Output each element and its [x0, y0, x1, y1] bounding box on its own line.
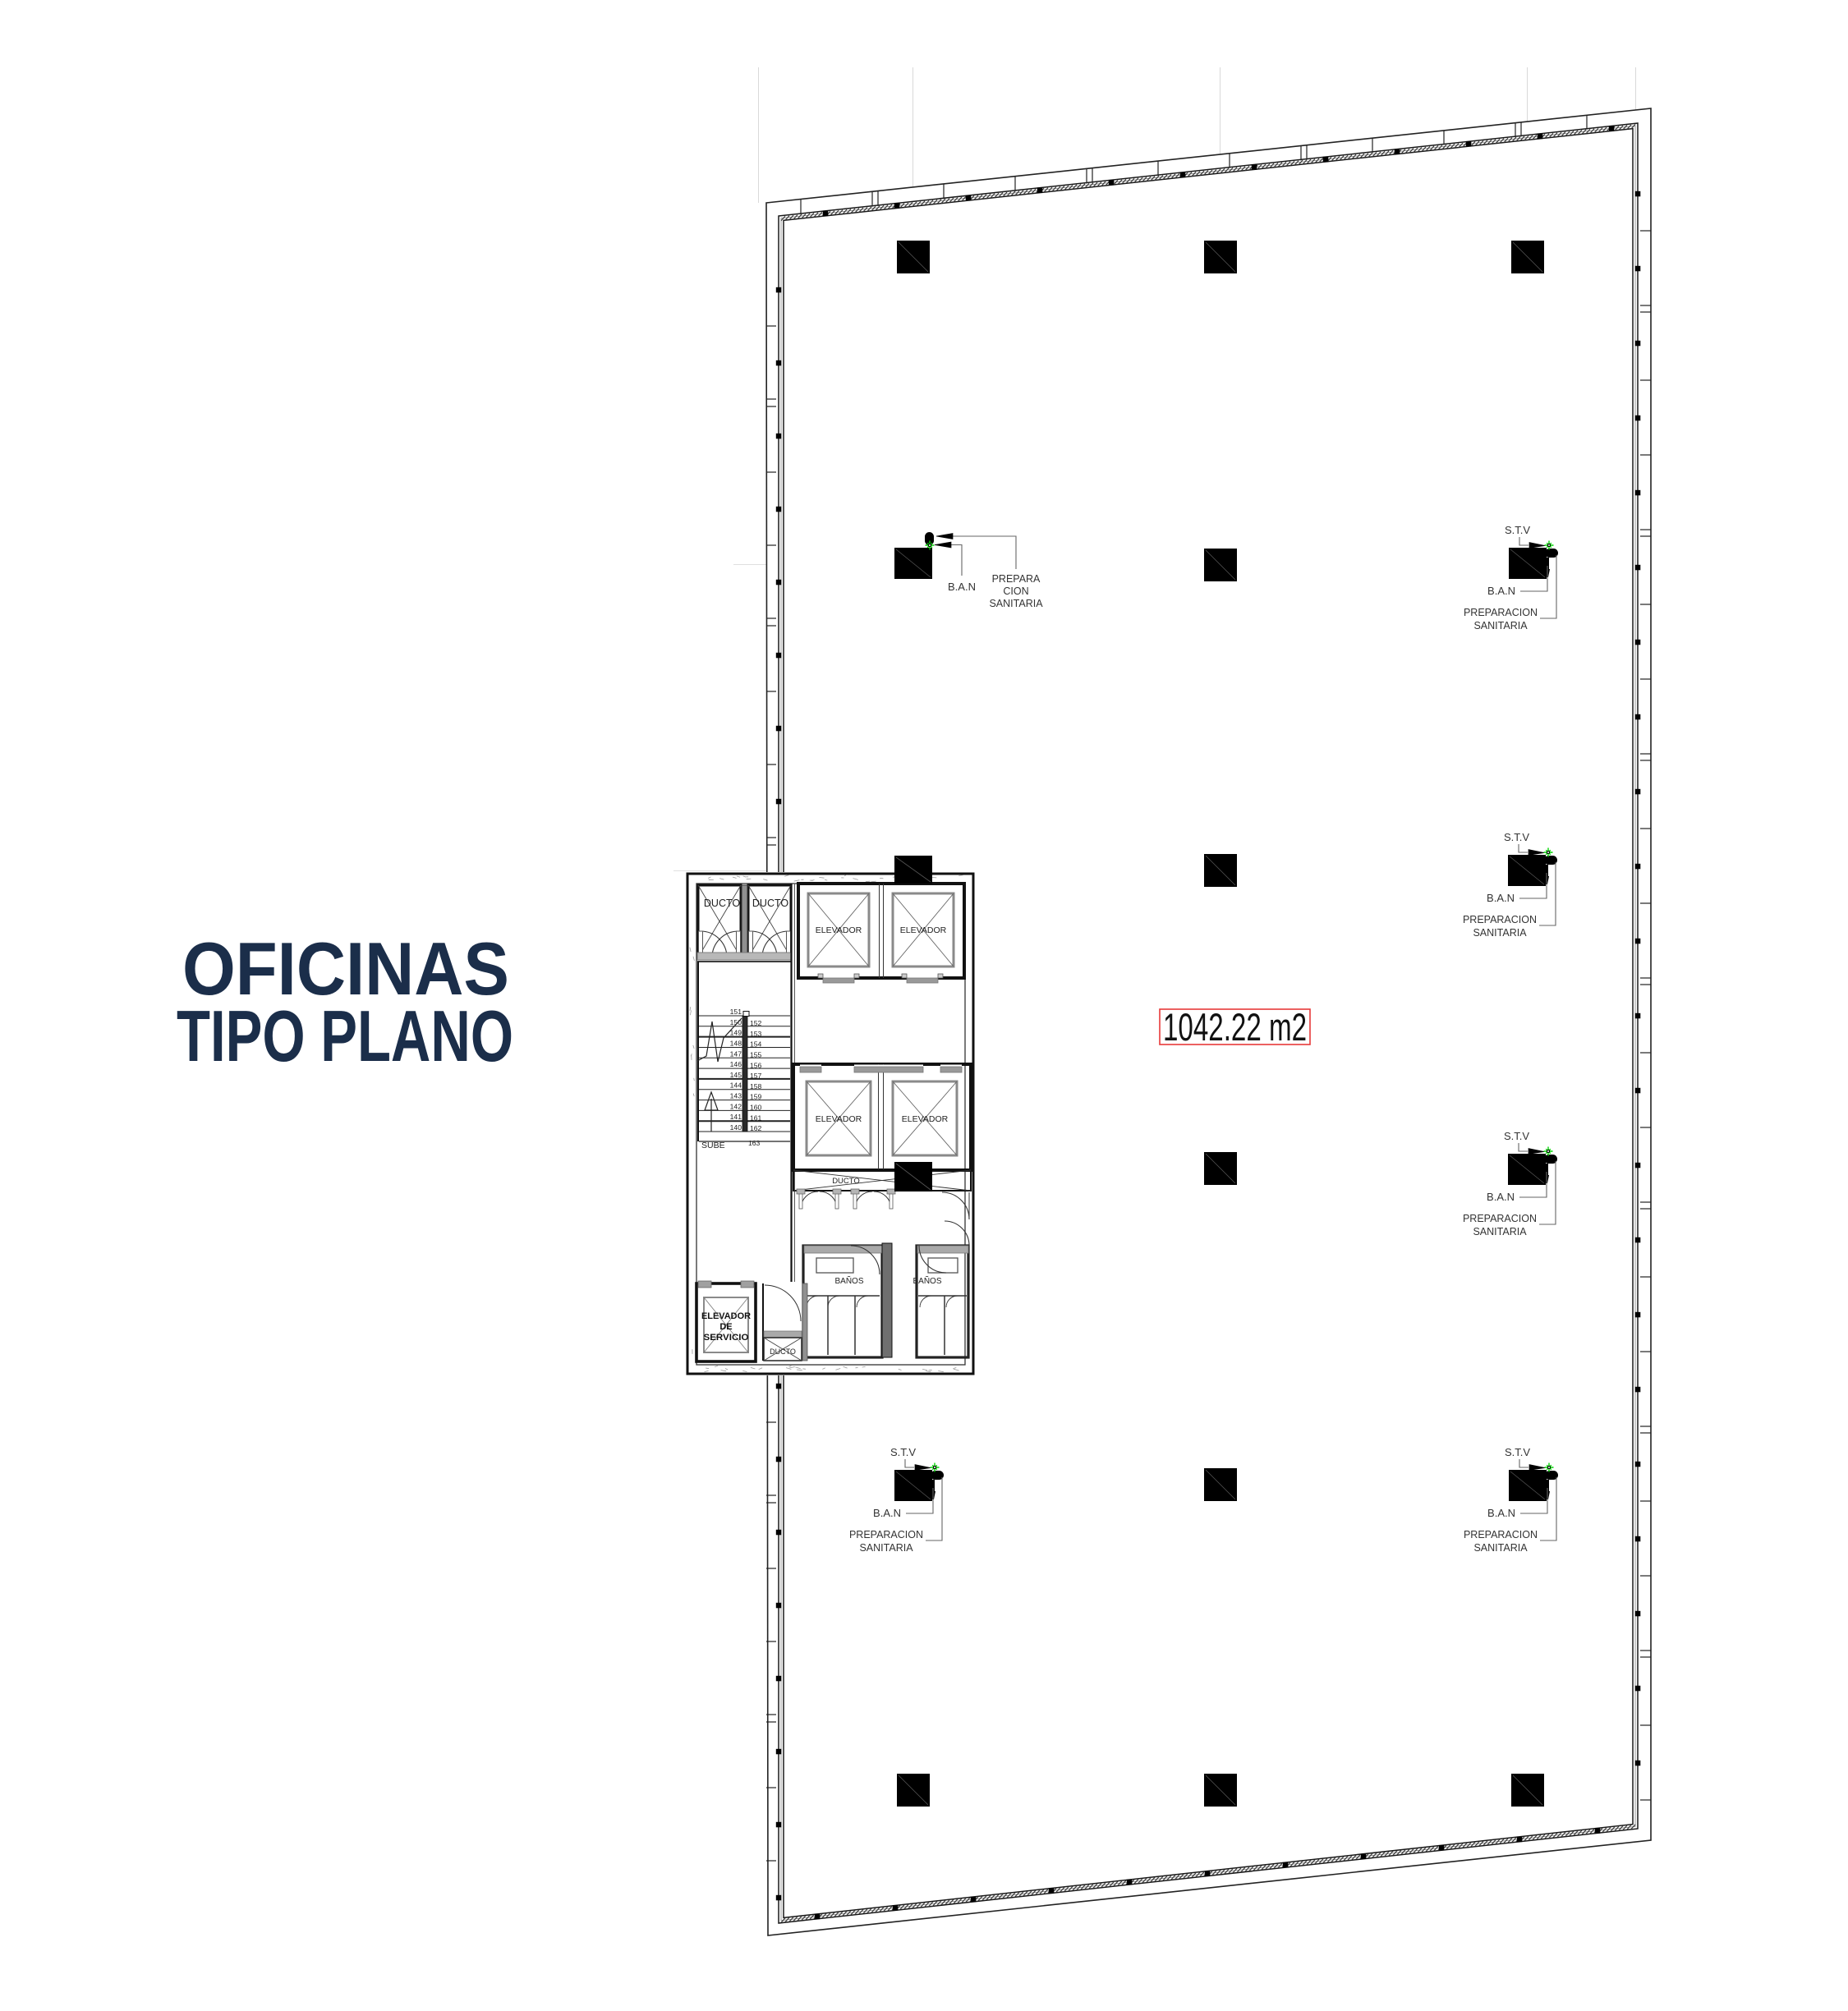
svg-text:155: 155 [750, 1051, 762, 1059]
svg-text:B.A.N: B.A.N [948, 581, 976, 593]
svg-text:SANITARIA: SANITARIA [989, 598, 1043, 609]
svg-text:B.A.N: B.A.N [1487, 585, 1515, 597]
svg-text:144: 144 [730, 1081, 742, 1090]
svg-text:B.A.N: B.A.N [1487, 892, 1515, 904]
svg-text:141: 141 [730, 1113, 742, 1121]
svg-text:SANITARIA: SANITARIA [1473, 620, 1528, 631]
svg-text:ELEVADOR: ELEVADOR [900, 925, 947, 935]
svg-text:152: 152 [750, 1019, 762, 1027]
svg-text:143: 143 [730, 1092, 742, 1100]
svg-text:S.T.V: S.T.V [1504, 831, 1529, 843]
svg-text:DE: DE [719, 1322, 732, 1332]
svg-text:PREPARACION: PREPARACION [1463, 914, 1537, 925]
svg-text:158: 158 [750, 1082, 762, 1090]
svg-text:160: 160 [750, 1104, 762, 1112]
svg-text:TIPO PLANO: TIPO PLANO [177, 995, 513, 1077]
svg-text:140: 140 [730, 1123, 742, 1132]
svg-text:B.A.N: B.A.N [1487, 1191, 1515, 1203]
svg-text:B.A.N: B.A.N [873, 1507, 901, 1519]
svg-text:154: 154 [750, 1040, 762, 1049]
svg-text:SANITARIA: SANITARIA [1473, 927, 1527, 939]
svg-text:1042.22 m2: 1042.22 m2 [1163, 1005, 1307, 1049]
svg-text:PREPARACION: PREPARACION [849, 1529, 923, 1540]
svg-text:SANITARIA: SANITARIA [859, 1542, 913, 1554]
svg-text:DUCTO: DUCTO [704, 898, 740, 909]
svg-text:161: 161 [750, 1113, 762, 1122]
svg-text:145: 145 [730, 1071, 742, 1079]
svg-text:157: 157 [750, 1072, 762, 1080]
svg-text:147: 147 [730, 1049, 742, 1058]
svg-text:ELEVADOR: ELEVADOR [816, 1114, 862, 1124]
svg-text:BAÑOS: BAÑOS [913, 1275, 941, 1286]
svg-text:SANITARIA: SANITARIA [1473, 1542, 1528, 1554]
svg-text:146: 146 [730, 1060, 742, 1068]
svg-text:S.T.V: S.T.V [1505, 1446, 1530, 1458]
svg-text:148: 148 [730, 1040, 742, 1048]
svg-text:SANITARIA: SANITARIA [1473, 1226, 1527, 1237]
svg-text:162: 162 [750, 1124, 762, 1132]
svg-text:DUCTO: DUCTO [832, 1177, 860, 1186]
svg-text:PREPARACION: PREPARACION [1464, 607, 1538, 618]
svg-text:S.T.V: S.T.V [890, 1446, 916, 1458]
svg-text:PREPARACION: PREPARACION [1464, 1529, 1538, 1540]
svg-text:156: 156 [750, 1061, 762, 1069]
svg-text:CION: CION [1003, 585, 1028, 597]
svg-text:ELEVADOR: ELEVADOR [816, 925, 862, 935]
svg-text:B.A.N: B.A.N [1487, 1507, 1515, 1519]
svg-text:163: 163 [748, 1139, 761, 1147]
svg-text:BAÑOS: BAÑOS [834, 1275, 863, 1286]
svg-text:ELEVADOR: ELEVADOR [902, 1114, 949, 1124]
svg-text:PREPARACION: PREPARACION [1463, 1213, 1537, 1224]
svg-text:ELEVADOR: ELEVADOR [701, 1311, 751, 1321]
svg-text:142: 142 [730, 1102, 742, 1110]
svg-text:SERVICIO: SERVICIO [704, 1333, 749, 1343]
svg-text:SUBE: SUBE [701, 1141, 725, 1150]
svg-text:159: 159 [750, 1093, 762, 1101]
svg-text:151: 151 [730, 1008, 742, 1016]
svg-text:DUCTO: DUCTO [752, 898, 788, 909]
svg-text:PREPARA: PREPARA [992, 573, 1041, 585]
svg-text:DUCTO: DUCTO [770, 1348, 796, 1356]
svg-text:153: 153 [750, 1030, 762, 1038]
svg-text:S.T.V: S.T.V [1505, 524, 1530, 536]
svg-text:S.T.V: S.T.V [1504, 1130, 1529, 1142]
